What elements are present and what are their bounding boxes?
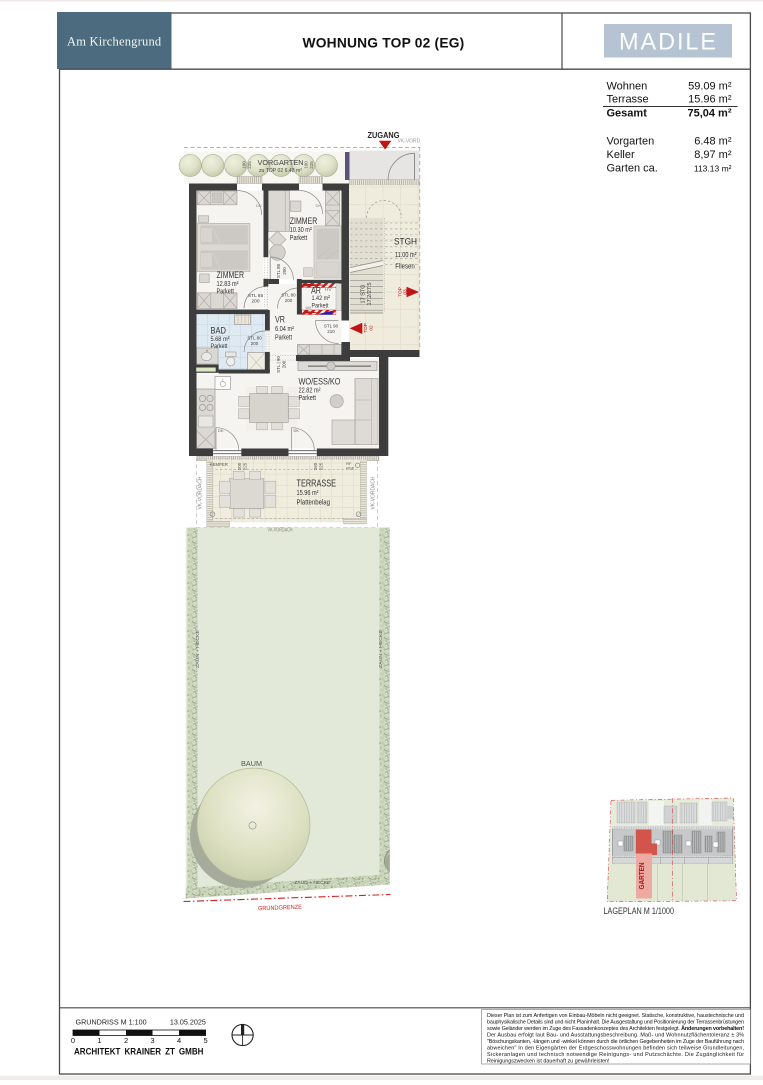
svg-text:Keller: Keller — [607, 149, 635, 161]
svg-text:VR: VR — [275, 315, 285, 325]
svg-text:ZAUN + HECKE: ZAUN + HECKE — [294, 880, 330, 886]
svg-text:DK: DK — [316, 203, 322, 208]
svg-text:17.2/27.5: 17.2/27.5 — [367, 283, 373, 306]
svg-text:1: 1 — [222, 379, 224, 383]
svg-text:22.82 m²: 22.82 m² — [299, 387, 322, 394]
svg-text:GRUNDRISS M 1:100: GRUNDRISS M 1:100 — [76, 1018, 147, 1027]
svg-text:zu TOP 02 6.48 m²: zu TOP 02 6.48 m² — [259, 168, 302, 174]
svg-text:225: 225 — [247, 161, 252, 169]
svg-text:Parkett: Parkett — [217, 289, 234, 296]
svg-text:STL | 90: STL | 90 — [276, 356, 281, 373]
svg-text:ARCHITEKT KRAINER ZT GMBH: ARCHITEKT KRAINER ZT GMBH — [74, 1047, 204, 1057]
svg-text:BAD: BAD — [211, 326, 227, 336]
svg-text:260: 260 — [313, 462, 318, 470]
svg-text:75,04 m²: 75,04 m² — [687, 108, 731, 120]
svg-text:STL 90: STL 90 — [324, 324, 339, 329]
svg-text:Plattenbelag: Plattenbelag — [297, 499, 331, 506]
svg-text:VK-VORDACH: VK-VORDACH — [371, 476, 377, 509]
svg-text:ZUGANG: ZUGANG — [368, 131, 400, 140]
svg-text:RSK: RSK — [346, 466, 355, 471]
svg-text:ZAUN + HECKE: ZAUN + HECKE — [378, 630, 384, 668]
svg-text:200: 200 — [285, 298, 293, 303]
svg-text:bauphysikalische Details sind: bauphysikalische Details sind und nicht … — [487, 1019, 744, 1025]
svg-text:100: 100 — [241, 161, 246, 169]
svg-text:Parkett: Parkett — [299, 395, 316, 402]
svg-text:15.96 m²: 15.96 m² — [297, 490, 320, 497]
svg-text:STL 80: STL 80 — [281, 293, 296, 298]
svg-text:ZAUN + HECKE: ZAUN + HECKE — [195, 630, 201, 668]
svg-text:STGH: STGH — [394, 237, 417, 248]
svg-text:sowie Geländer werden im Zuge: sowie Geländer werden im Zuge des Fassad… — [487, 1025, 744, 1032]
svg-text:LAGEPLAN M 1/1000: LAGEPLAN M 1/1000 — [604, 906, 675, 916]
svg-text:HV: HV — [325, 287, 332, 293]
svg-text:225: 225 — [319, 462, 324, 470]
svg-text:Parkett: Parkett — [211, 343, 228, 350]
svg-text:ZIMMER: ZIMMER — [217, 270, 245, 280]
svg-text:Parkett: Parkett — [290, 235, 307, 242]
svg-text:1: 1 — [97, 1036, 101, 1045]
svg-text:STL 85: STL 85 — [248, 293, 264, 299]
svg-text:Terrasse: Terrasse — [607, 94, 649, 106]
svg-text:Parkett: Parkett — [275, 334, 292, 341]
svg-text:6.48 m²: 6.48 m² — [694, 136, 732, 148]
svg-text:225: 225 — [242, 462, 247, 470]
svg-text:13.05.2025: 13.05.2025 — [170, 1018, 206, 1027]
svg-text:Sickeranlagen und technisch no: Sickeranlagen und technisch notwendige R… — [487, 1052, 744, 1058]
svg-text:Gesamt: Gesamt — [607, 108, 648, 120]
svg-text:5: 5 — [204, 1036, 208, 1045]
svg-text:KEMPER: KEMPER — [210, 462, 229, 467]
svg-text:8,97 m²: 8,97 m² — [694, 149, 732, 161]
svg-text:VK-VORDACH: VK-VORDACH — [198, 476, 204, 509]
svg-text:02: 02 — [368, 325, 374, 331]
svg-text:Wohnen: Wohnen — [607, 81, 648, 93]
svg-text:210: 210 — [327, 329, 335, 334]
svg-text:0: 0 — [71, 1036, 75, 1045]
svg-text:11.00 m²: 11.00 m² — [395, 252, 417, 259]
svg-text:Dieser Plan ist zum Anfertigen: Dieser Plan ist zum Anfertigen von Einba… — [487, 1013, 744, 1019]
svg-text:Am Kirchengrund: Am Kirchengrund — [67, 35, 162, 49]
svg-text:WO/ESS/KO: WO/ESS/KO — [299, 376, 341, 387]
svg-text:5.68 m²: 5.68 m² — [211, 336, 231, 343]
svg-text:10.30 m²: 10.30 m² — [290, 227, 313, 234]
svg-text:TOP: TOP — [363, 323, 369, 333]
svg-text:15.96 m²: 15.96 m² — [688, 94, 732, 106]
svg-text:6.04 m²: 6.04 m² — [275, 326, 295, 333]
svg-text:Garten ca.: Garten ca. — [607, 163, 658, 175]
svg-text:03: 03 — [402, 289, 408, 295]
svg-text:ZIMMER: ZIMMER — [290, 216, 318, 226]
svg-text:VK-VORD: VK-VORD — [398, 139, 421, 145]
svg-text:GARTEN: GARTEN — [637, 863, 646, 890]
svg-text:Vorgarten: Vorgarten — [607, 136, 655, 148]
svg-text:225: 225 — [309, 161, 314, 169]
svg-text:"Böschungskanten, -längen und: "Böschungskanten, -längen und -winkel kö… — [487, 1039, 744, 1045]
svg-text:DK: DK — [294, 428, 300, 433]
svg-text:DK: DK — [256, 203, 262, 208]
svg-text:Parkett: Parkett — [312, 303, 329, 310]
svg-text:WOHNUNG TOP 02 (EG): WOHNUNG TOP 02 (EG) — [303, 36, 465, 51]
svg-text:17 STG: 17 STG — [361, 285, 367, 304]
svg-text:200: 200 — [251, 299, 259, 305]
svg-text:3: 3 — [150, 1036, 154, 1045]
svg-text:59.09 m²: 59.09 m² — [688, 81, 732, 93]
svg-text:2: 2 — [124, 1036, 128, 1045]
svg-text:VK-VORDACH: VK-VORDACH — [268, 528, 293, 534]
svg-text:12.83 m²: 12.83 m² — [217, 281, 240, 288]
svg-text:STL 80: STL 80 — [276, 263, 281, 278]
svg-text:AR: AR — [311, 286, 321, 296]
svg-text:Fliesen: Fliesen — [395, 264, 415, 271]
svg-text:200: 200 — [281, 360, 286, 368]
svg-text:Der Ausbau erfolgt laut Bau- u: Der Ausbau erfolgt laut Bau- und Ausstat… — [487, 1032, 744, 1038]
svg-text:TERRASSE: TERRASSE — [297, 477, 337, 489]
svg-text:200: 200 — [237, 462, 242, 470]
svg-text:4: 4 — [177, 1036, 181, 1045]
svg-text:abweichen" In den Eigengärten: abweichen" In den Eigengärten der Erdges… — [487, 1046, 745, 1052]
svg-text:VORGARTEN: VORGARTEN — [258, 158, 304, 167]
svg-text:200: 200 — [282, 267, 287, 275]
svg-text:113.13 m²: 113.13 m² — [694, 164, 732, 174]
svg-text:MADILE: MADILE — [619, 29, 718, 56]
svg-text:1.42 m²: 1.42 m² — [312, 295, 331, 302]
svg-text:Reinigungszwecken ist dauerhaf: Reinigungszwecken ist dauerhaft zu gewäh… — [487, 1059, 610, 1065]
svg-text:WM: WM — [306, 306, 312, 310]
svg-text:BAUM: BAUM — [241, 761, 262, 768]
svg-text:100: 100 — [303, 161, 308, 169]
svg-text:DK: DK — [218, 428, 224, 433]
svg-text:200: 200 — [251, 341, 259, 346]
svg-text:STL 80: STL 80 — [247, 336, 262, 341]
